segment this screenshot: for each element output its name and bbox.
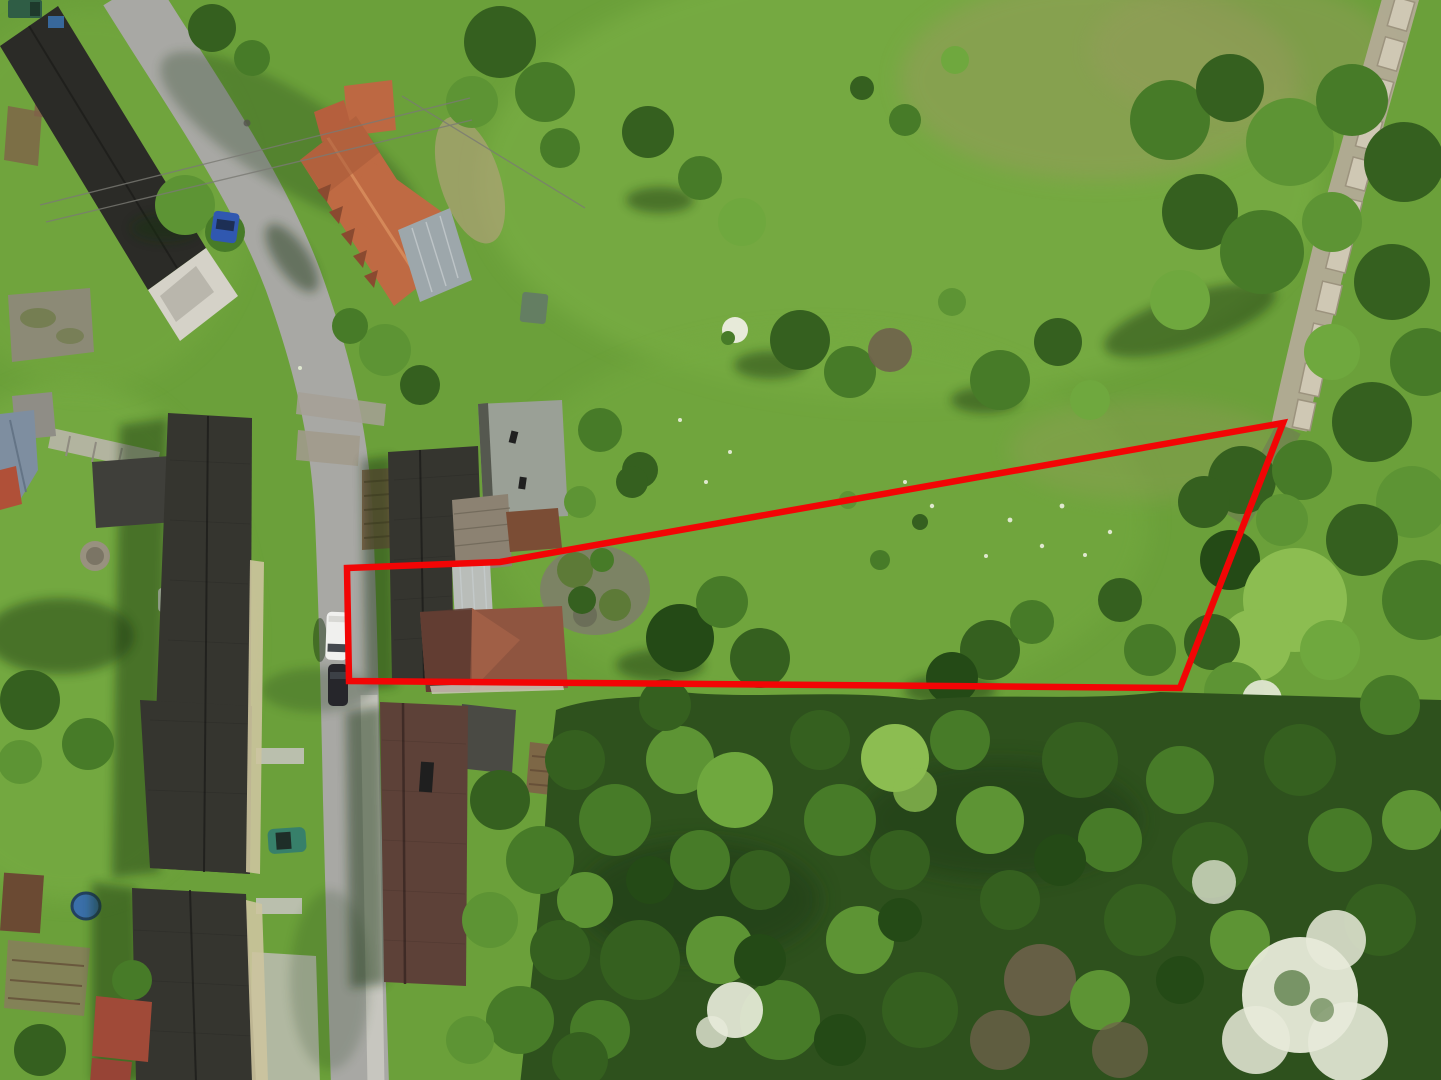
rusty-shed [506,508,562,552]
garden-shed [520,292,549,325]
dark-car [328,664,348,706]
roof-window [419,762,434,793]
aerial-photo-stage [0,0,1441,1080]
teal-car [267,827,307,855]
cross-barn [92,456,174,528]
walkway [256,898,302,914]
walkway [256,748,304,764]
utility-pole [244,120,251,127]
aerial-photo [0,0,1441,1080]
mossy-barn [8,288,94,362]
red-tile-roof [92,996,152,1062]
brown-shed [0,873,44,934]
blue-car [210,210,240,243]
blue-bin [48,16,64,28]
gravel-drive [296,430,360,466]
garden-bed [4,106,42,166]
